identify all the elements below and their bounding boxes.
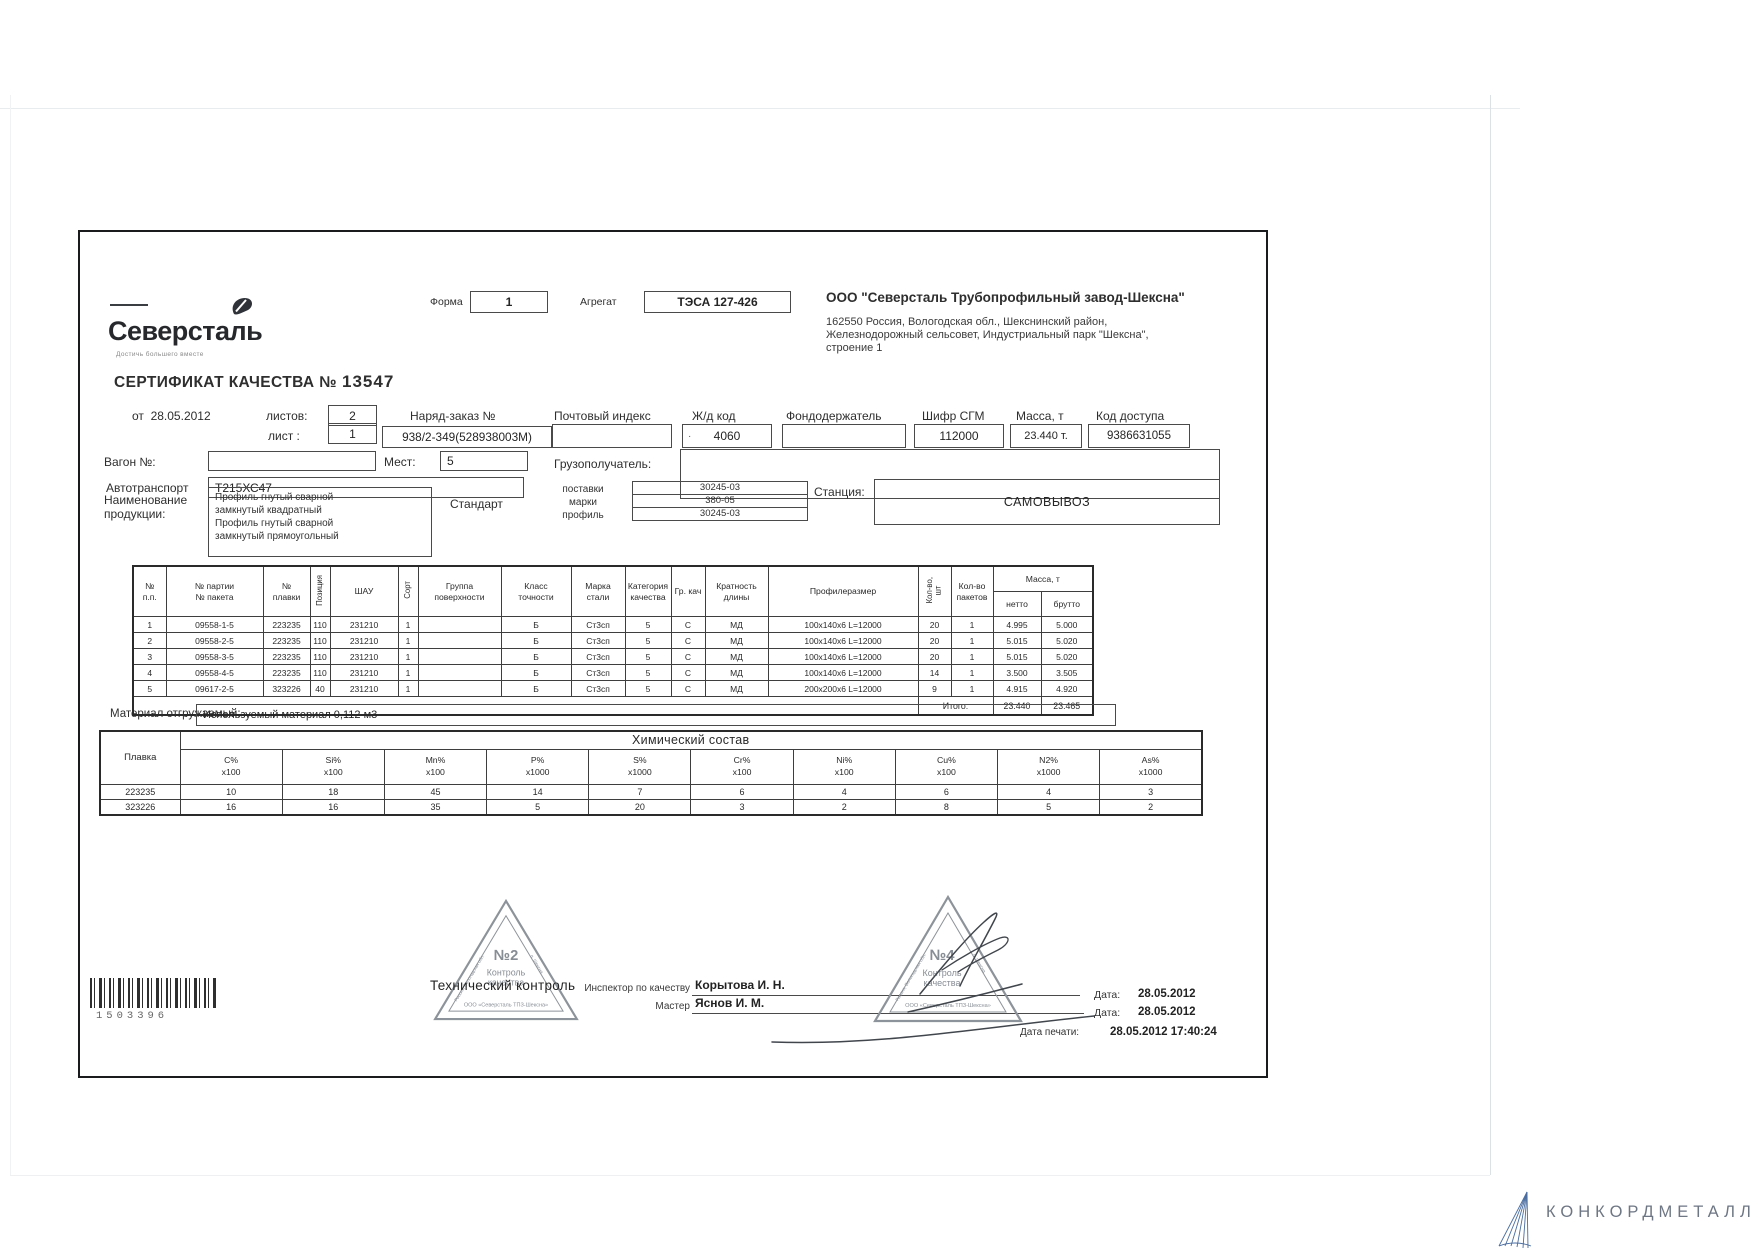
col-header: Группа поверхности: [418, 566, 501, 617]
scan-edge-bottom: [10, 1175, 1490, 1176]
table-cell: 5.015: [993, 649, 1041, 665]
table-cell: 09617-2-5: [166, 681, 263, 697]
chem-heat-cell: 223235: [100, 785, 180, 800]
from-date: от 28.05.2012: [132, 409, 211, 423]
wagon-label: Вагон №:: [104, 455, 156, 469]
col-header: Сорт: [398, 566, 418, 617]
table-cell: 4.995: [993, 617, 1041, 633]
table-cell: 1: [398, 649, 418, 665]
table-cell: 4.915: [993, 681, 1041, 697]
svg-text:№2: №2: [494, 948, 519, 964]
col-header: Кол-во, шт: [918, 566, 951, 617]
order-value-box: 938/2-349(528938003М): [382, 426, 552, 448]
table-cell: С: [671, 617, 705, 633]
table-cell: 110: [310, 665, 330, 681]
sheet-label: лист :: [268, 429, 300, 443]
chem-heat-cell: 323226: [100, 800, 180, 816]
table-cell: 14: [918, 665, 951, 681]
chem-value-cell: 6: [895, 785, 997, 800]
col-header: ШАУ: [330, 566, 398, 617]
rail-code-label: Ж/д код: [692, 409, 736, 423]
table-cell: [418, 665, 501, 681]
form-label: Форма: [430, 296, 463, 308]
table-cell: МД: [705, 649, 768, 665]
table-cell: 1: [133, 617, 166, 633]
table-cell: 5.020: [1041, 633, 1093, 649]
certificate-title: СЕРТИФИКАТ КАЧЕСТВА №: [114, 374, 337, 392]
table-cell: 09558-3-5: [166, 649, 263, 665]
chem-col-header: Si% х100: [282, 750, 384, 785]
table-cell: 231210: [330, 649, 398, 665]
chem-value-cell: 16: [180, 800, 282, 816]
table-cell: Б: [501, 649, 571, 665]
table-cell: 110: [310, 633, 330, 649]
svg-text:ООО «Северсталь ТПЗ-Шексна»: ООО «Северсталь ТПЗ-Шексна»: [905, 1003, 991, 1009]
chem-row: 32322616163552032852: [100, 800, 1202, 816]
date-label-1: Дата:: [1094, 989, 1120, 1001]
chem-value-cell: 5: [487, 800, 589, 816]
master-label: Мастер: [640, 1001, 690, 1012]
col-header: Класс точности: [501, 566, 571, 617]
table-cell: [418, 681, 501, 697]
table-cell: Б: [501, 681, 571, 697]
chem-value-cell: 14: [487, 785, 589, 800]
quality-stamp-2: №2 Контроль качества ООО «Северсталь ТПЗ…: [432, 898, 580, 1022]
table-cell: 5.020: [1041, 649, 1093, 665]
table-cell: 231210: [330, 617, 398, 633]
col-header-netto: нетто: [993, 592, 1041, 617]
table-cell: 1: [951, 681, 993, 697]
places-label: Мест:: [384, 455, 416, 469]
table-cell: 5.015: [993, 633, 1041, 649]
rail-code-mark: ·: [688, 431, 691, 442]
concord-metal-icon: [1497, 1190, 1539, 1250]
sgm-label: Шифр СГМ: [922, 409, 984, 423]
table-cell: 110: [310, 617, 330, 633]
postal-value-box: [552, 424, 672, 448]
holder-label: Фондодержатель: [786, 409, 882, 423]
chem-value-cell: 16: [282, 800, 384, 816]
table-cell: 9: [918, 681, 951, 697]
col-header: № партии № пакета: [166, 566, 263, 617]
table-cell: Ст3сп: [571, 665, 625, 681]
technical-control-overlay: Технический контроль: [430, 978, 575, 993]
chemistry-table-body: 2232351018451476464332322616163552032852: [100, 785, 1202, 816]
chem-value-cell: 3: [691, 800, 793, 816]
table-cell: Ст3сп: [571, 633, 625, 649]
table-cell: С: [671, 649, 705, 665]
table-cell: [418, 617, 501, 633]
chem-value-cell: 5: [998, 800, 1100, 816]
table-cell: 1: [398, 681, 418, 697]
standard-label: Стандарт: [450, 497, 503, 511]
table-cell: 5: [625, 665, 671, 681]
table-cell: 231210: [330, 681, 398, 697]
svg-text:Контроль: Контроль: [487, 968, 526, 978]
chem-value-cell: 35: [384, 800, 486, 816]
col-header: № плавки: [263, 566, 310, 617]
chem-col-header: Cr% х100: [691, 750, 793, 785]
table-cell: 20: [918, 633, 951, 649]
chem-title: Химический состав: [180, 731, 1202, 750]
table-cell: 2: [133, 633, 166, 649]
table-cell: 1: [398, 617, 418, 633]
table-row: 509617-2-5323226402312101БСт3сп5СМД200х2…: [133, 681, 1093, 697]
scanned-certificate-page: { "colors": { "ink": "#2f2f2f", "frame":…: [0, 0, 1754, 1240]
table-cell: 1: [398, 665, 418, 681]
chem-value-cell: 3: [1100, 785, 1202, 800]
product-name-label: Наименование продукции:: [104, 493, 187, 521]
table-row: 109558-1-52232351102312101БСт3сп5СМД100х…: [133, 617, 1093, 633]
chem-value-cell: 2: [1100, 800, 1202, 816]
company-name: ООО "Северсталь Трубопрофильный завод-Ше…: [826, 290, 1185, 305]
station-label: Станция:: [814, 485, 865, 499]
table-cell: 5: [625, 617, 671, 633]
table-cell: 5: [625, 681, 671, 697]
barcode: [90, 978, 216, 1008]
table-cell: 100х140х6 L=12000: [768, 649, 918, 665]
severstal-logo-tagline: Достичь большего вместе: [116, 351, 204, 358]
chem-value-cell: 4: [998, 785, 1100, 800]
chem-col-header: S% х1000: [589, 750, 691, 785]
table-cell: 100х140х6 L=12000: [768, 665, 918, 681]
sheets-label: листов:: [266, 409, 307, 423]
table-cell: 1: [951, 649, 993, 665]
access-code-box: 9386631055: [1088, 424, 1190, 448]
col-header: Гр. кач: [671, 566, 705, 617]
chem-col-header: As% х1000: [1100, 750, 1202, 785]
aggregate-label: Агрегат: [580, 296, 617, 308]
table-cell: [418, 633, 501, 649]
table-cell: 100х140х6 L=12000: [768, 633, 918, 649]
chem-value-cell: 10: [180, 785, 282, 800]
certificate-number: 13547: [342, 372, 394, 392]
svg-text:ООО «Северсталь ТПЗ-Шексна»: ООО «Северсталь ТПЗ-Шексна»: [464, 1002, 548, 1008]
table-cell: 3: [133, 649, 166, 665]
table-cell: 110: [310, 649, 330, 665]
chem-value-cell: 4: [793, 785, 895, 800]
table-cell: 231210: [330, 633, 398, 649]
table-cell: 1: [398, 633, 418, 649]
order-label: Наряд-заказ №: [410, 409, 495, 423]
table-cell: 223235: [263, 633, 310, 649]
station-value-box: САМОВЫВОЗ: [874, 479, 1220, 525]
svg-text:п. Шексна: п. Шексна: [529, 954, 544, 975]
access-code-label: Код доступа: [1096, 409, 1164, 423]
col-header-mass: Масса, т: [993, 566, 1093, 592]
table-cell: Б: [501, 633, 571, 649]
rail-code-box: · 4060: [682, 424, 772, 448]
scan-edge-top: [0, 108, 1520, 109]
standard-values: 30245-03 380-05 30245-03: [632, 481, 808, 521]
consignee-label: Грузополучатель:: [554, 457, 651, 471]
company-address: 162550 Россия, Вологодская обл., Шекснин…: [826, 316, 1149, 355]
inspector-name: Корытова И. Н.: [695, 978, 785, 992]
mass-label: Масса, т: [1016, 409, 1064, 423]
table-cell: 20: [918, 649, 951, 665]
quality-stamp-4: №4 Контроль качества ООО «Северсталь ТПЗ…: [872, 894, 1024, 1024]
places-value-box: 5: [440, 451, 528, 471]
table-cell: 5.000: [1041, 617, 1093, 633]
barcode-number: 1503396: [96, 1010, 168, 1022]
table-cell: 5: [133, 681, 166, 697]
form-value-box: 1: [470, 291, 548, 313]
table-cell: 223235: [263, 617, 310, 633]
date-label-2: Дата:: [1094, 1007, 1120, 1019]
master-name: Яснов И. М.: [695, 996, 764, 1010]
chem-col-header: Cu% х100: [895, 750, 997, 785]
chem-element-headers: C% х100Si% х100Mn% х100P% х1000S% х1000C…: [100, 750, 1202, 785]
sgm-value-box: 112000: [914, 424, 1004, 448]
table-cell: Б: [501, 617, 571, 633]
col-header: Позиция: [310, 566, 330, 617]
table-cell: Б: [501, 665, 571, 681]
standard-row-labels: поставки марки профиль: [540, 484, 626, 522]
table-cell: 223235: [263, 649, 310, 665]
table-cell: С: [671, 665, 705, 681]
table-cell: 09558-1-5: [166, 617, 263, 633]
table-cell: МД: [705, 633, 768, 649]
severstal-logo-wordmark: Северсталь: [108, 316, 262, 347]
col-header: Кол-во пакетов: [951, 566, 993, 617]
col-header: Марка стали: [571, 566, 625, 617]
print-date-label: Дата печати:: [1020, 1027, 1079, 1038]
chem-value-cell: 45: [384, 785, 486, 800]
table-cell: Ст3сп: [571, 617, 625, 633]
chem-col-header: P% х1000: [487, 750, 589, 785]
chem-col-header: C% х100: [180, 750, 282, 785]
chem-value-cell: 6: [691, 785, 793, 800]
table-cell: С: [671, 633, 705, 649]
holder-value-box: [782, 424, 906, 448]
chem-col-header: Ni% х100: [793, 750, 895, 785]
chem-col-header: Mn% х100: [384, 750, 486, 785]
table-cell: 40: [310, 681, 330, 697]
chem-value-cell: 7: [589, 785, 691, 800]
chem-value-cell: 2: [793, 800, 895, 816]
print-date-value: 28.05.2012 17:40:24: [1110, 1026, 1217, 1038]
date-value-1: 28.05.2012: [1138, 988, 1196, 1000]
col-header: Кратность длины: [705, 566, 768, 617]
table-cell: С: [671, 681, 705, 697]
chem-value-cell: 18: [282, 785, 384, 800]
chem-value-cell: 20: [589, 800, 691, 816]
col-header: Профилеразмер: [768, 566, 918, 617]
table-cell: 200х200х6 L=12000: [768, 681, 918, 697]
inspector-label: Инспектор по качеству: [580, 983, 690, 994]
table-row: 409558-4-52232351102312101БСт3сп5СМД100х…: [133, 665, 1093, 681]
table-cell: 1: [951, 617, 993, 633]
aggregate-value-box: ТЭСА 127-426: [644, 291, 791, 313]
wagon-value-box: [208, 451, 376, 471]
chem-col-header: N2% х1000: [998, 750, 1100, 785]
scan-edge-right: [1490, 95, 1491, 1175]
shipment-table-body: 109558-1-52232351102312101БСт3сп5СМД100х…: [133, 617, 1093, 697]
table-cell: 09558-4-5: [166, 665, 263, 681]
severstal-logo-dash: [110, 304, 148, 306]
table-cell: 323226: [263, 681, 310, 697]
table-cell: МД: [705, 681, 768, 697]
certificate-frame: Северсталь Достичь большего вместе Форма…: [78, 230, 1268, 1078]
chem-value-cell: 8: [895, 800, 997, 816]
table-cell: 3.505: [1041, 665, 1093, 681]
shipment-table: № п.п. № партии № пакета № плавки Позици…: [132, 565, 1094, 716]
table-cell: 5: [625, 649, 671, 665]
table-cell: 100х140х6 L=12000: [768, 617, 918, 633]
table-cell: Ст3сп: [571, 649, 625, 665]
table-cell: 4.920: [1041, 681, 1093, 697]
table-cell: МД: [705, 617, 768, 633]
postal-label: Почтовый индекс: [554, 409, 651, 423]
table-row: 309558-3-52232351102312101БСт3сп5СМД100х…: [133, 649, 1093, 665]
chemistry-table: Плавка Химический состав C% х100Si% х100…: [99, 730, 1203, 816]
date-value-2: 28.05.2012: [1138, 1006, 1196, 1018]
table-cell: 1: [951, 633, 993, 649]
table-cell: 4: [133, 665, 166, 681]
table-cell: 3.500: [993, 665, 1041, 681]
material-value-box: Используемый материал 0,112 м3: [196, 704, 1116, 726]
table-cell: 5: [625, 633, 671, 649]
mass-value-box: 23.440 т.: [1010, 424, 1082, 448]
col-header: Категория качества: [625, 566, 671, 617]
heat-col-header: Плавка: [100, 731, 180, 785]
scan-edge-left: [10, 95, 11, 1175]
col-header-brutto: брутто: [1041, 592, 1093, 617]
chem-row: 22323510184514764643: [100, 785, 1202, 800]
table-cell: 1: [951, 665, 993, 681]
table-cell: 20: [918, 617, 951, 633]
col-header: № п.п.: [133, 566, 166, 617]
table-cell: [418, 649, 501, 665]
concord-metal-wordmark: КОНКОРДМЕТАЛЛ: [1546, 1203, 1754, 1222]
table-cell: МД: [705, 665, 768, 681]
table-cell: Ст3сп: [571, 681, 625, 697]
table-cell: 223235: [263, 665, 310, 681]
table-row: 209558-2-52232351102312101БСт3сп5СМД100х…: [133, 633, 1093, 649]
table-cell: 231210: [330, 665, 398, 681]
product-name-box: Профиль гнутый сварной замкнутый квадрат…: [208, 487, 432, 557]
sheet-value-box: 1: [328, 423, 377, 444]
table-cell: 09558-2-5: [166, 633, 263, 649]
